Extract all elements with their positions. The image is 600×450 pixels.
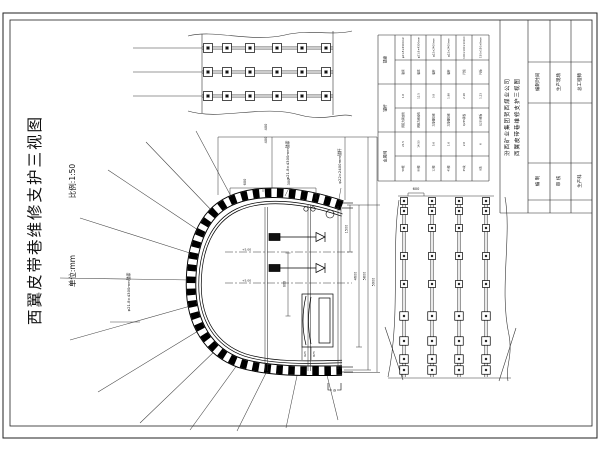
bolt-head — [403, 255, 405, 257]
elevation-view: 600 — [385, 187, 516, 381]
cross-section: +5.00 +5.00 625 875 — [60, 124, 380, 431]
bolt-head — [431, 255, 433, 257]
table-cell: 8块 — [479, 166, 483, 171]
field-label: 编制时间 — [534, 73, 541, 91]
bolt-head — [301, 71, 304, 74]
table-cell: 14.50 — [417, 140, 421, 148]
table-cell: 2.6 — [462, 142, 466, 146]
table-cell: 托板 — [462, 69, 466, 75]
bolt-head — [431, 283, 433, 285]
level-mark: +5.00 — [242, 248, 251, 252]
material-table: 锚索锚杆金属网φ21.8×4300mmφ21.8×4300mmφ22×2400m… — [378, 35, 489, 181]
table-side-header: 锚索 — [383, 56, 388, 64]
table-cell: 锚索 — [401, 69, 405, 75]
dim-label: 800 — [283, 281, 287, 287]
bolt-head — [431, 369, 433, 371]
bolt-head — [325, 71, 328, 74]
table-cell: 1.23 — [479, 93, 483, 99]
bolt-head — [458, 210, 460, 212]
table-cell: 150×150×8mm — [479, 37, 483, 58]
bolt-head — [485, 283, 487, 285]
bolt-head — [403, 283, 405, 285]
table-side-header: 锚杆 — [383, 104, 388, 112]
table-cell: 45根 — [447, 165, 451, 171]
table-cell: 6 — [479, 143, 483, 145]
section-structure-lines — [265, 205, 341, 371]
bolt-head — [403, 200, 405, 202]
bolt-head — [485, 369, 487, 371]
table-cell: 2.16 — [462, 93, 466, 99]
bolt-head — [458, 369, 460, 371]
table-cell: φ22×2400mm — [447, 38, 451, 57]
bolt-head — [458, 227, 460, 229]
bolt-head — [485, 255, 487, 257]
bolt-head — [226, 95, 229, 98]
bolt-head — [301, 95, 304, 98]
bolt-head — [458, 283, 460, 285]
bolt-head — [226, 47, 229, 50]
elevation-dim — [408, 193, 424, 196]
bolt-head — [207, 95, 210, 98]
level-mark: +5.00 — [242, 279, 251, 283]
table-cell: 1.6 — [401, 94, 405, 98]
bolt-head — [431, 210, 433, 212]
dim-label: 5900 — [372, 278, 376, 287]
field-label: 总工程师 — [576, 73, 583, 91]
table-cell: 锚索 — [417, 69, 421, 75]
bolt-head — [431, 358, 433, 360]
field-label: 审 核 — [555, 175, 562, 186]
bolt-head — [458, 255, 460, 257]
bolt-head — [249, 71, 252, 74]
bolt-head — [485, 340, 487, 342]
plan-bolt-grid — [204, 44, 331, 101]
anchor-cable-label: φ21.8×4300mm锚索 — [285, 140, 290, 179]
bolt-head — [249, 47, 252, 50]
dim-label: 400 — [264, 137, 268, 144]
table-cell: Q235钢板 — [462, 114, 466, 127]
table-cell: φ21.8×4300mm — [401, 36, 405, 58]
bolt-head — [207, 47, 210, 50]
bolt-head — [431, 227, 433, 229]
table-cell: 锚杆 — [432, 69, 436, 75]
bolt-head — [325, 47, 328, 50]
bolt-head — [403, 315, 405, 317]
bolt-head — [403, 369, 405, 371]
table-cell: 88根 — [417, 165, 421, 171]
bolt-head — [485, 315, 487, 317]
table-cell: 56根 — [401, 165, 405, 171]
anchor-bolt-symbols — [269, 232, 325, 273]
dim-label: 1500 — [345, 225, 349, 234]
anchor-cable-label: φ21.8×4300mm锚索 — [126, 272, 131, 311]
table-cell: 预应力钢绞线 — [417, 112, 421, 128]
section-mark-label: a — [333, 389, 336, 394]
scale-label: 比例:1:50 — [67, 164, 77, 199]
arch-support-band — [191, 193, 353, 372]
table-cell: φ21.8×4300mm — [417, 36, 421, 58]
bolt-head — [276, 95, 279, 98]
table-cell: 35块 — [462, 165, 466, 171]
drawing-sheet: 西翼皮带巷维修支护三视图 比例:1:50 单位:mm — [0, 0, 600, 450]
dim-label: 600 — [413, 187, 420, 191]
dim-label: 4600 — [354, 272, 358, 281]
bolt-head — [207, 71, 210, 74]
stand-dim: 875 — [312, 351, 316, 357]
dim-label: 600 — [243, 179, 247, 186]
table-cell: 锚杆 — [447, 69, 451, 75]
table-cell: 12.5 — [417, 93, 421, 99]
bolt-head — [325, 95, 328, 98]
bolt-head — [249, 95, 252, 98]
table-cell: Q235钢板 — [479, 114, 483, 127]
bolt-head — [403, 210, 405, 212]
dim-label: 5800 — [363, 272, 367, 281]
bolt-head — [276, 47, 279, 50]
sheet-titles: 西翼皮带巷维修支护三视图 比例:1:50 单位:mm — [26, 115, 77, 325]
bolt-head — [276, 71, 279, 74]
bolt-head — [485, 210, 487, 212]
bolt-head — [301, 47, 304, 50]
bolt-head — [403, 227, 405, 229]
bolt-head — [431, 315, 433, 317]
bolt-head — [431, 340, 433, 342]
table-cell: 100×100×10mm — [462, 36, 466, 59]
table-side-header: 金属网 — [383, 151, 388, 163]
title-block-drawing-title: 西翼皮带巷维修支护三视图 — [513, 78, 521, 156]
dim-right-chain — [344, 137, 380, 373]
table-cell: φ22×2400mm — [432, 38, 436, 57]
field-label: 编 制 — [534, 175, 541, 186]
table-cell: 左旋螺纹钢 — [447, 113, 451, 126]
anchor-bolt-label: φ22×2400mm锚杆 — [337, 148, 342, 183]
bolt-head — [458, 340, 460, 342]
table-cell: 21.5 — [401, 141, 405, 147]
page-title: 西翼皮带巷维修支护三视图 — [26, 115, 44, 325]
bolt-head — [403, 358, 405, 360]
bolt-head — [458, 358, 460, 360]
company-name: 汾西矿业集团贺西煤业公司 — [503, 78, 511, 156]
table-cell: 5.6 — [432, 142, 436, 146]
table-cell: 预应力钢绞线 — [401, 112, 405, 128]
field-label: 生产科 — [576, 174, 583, 188]
table-cell: 左旋螺纹钢 — [432, 113, 436, 126]
table-cell: 1.98 — [447, 93, 451, 99]
title-block: 汾西矿业集团贺西煤业公司 西翼皮带巷维修支护三视图 编制时间 生产现场 总工程师… — [500, 20, 592, 213]
bolt-head — [431, 200, 433, 202]
bolt-head — [458, 200, 460, 202]
engineering-drawing: 西翼皮带巷维修支护三视图 比例:1:50 单位:mm — [0, 0, 600, 450]
bolt-head — [226, 71, 229, 74]
dim-label: 400 — [264, 124, 268, 131]
stand-dim: 625 — [303, 351, 307, 357]
table-cell: 12根 — [432, 165, 436, 171]
table-cell: 托板 — [479, 69, 483, 75]
table-cell: 1.6 — [447, 142, 451, 146]
table-cell: 0.8 — [432, 94, 436, 98]
belt-stand — [302, 294, 333, 360]
bolt-head — [485, 200, 487, 202]
bolt-head — [485, 227, 487, 229]
bolt-head — [485, 358, 487, 360]
field-label: 生产现场 — [555, 73, 562, 91]
bolt-head — [403, 340, 405, 342]
bolt-head — [458, 315, 460, 317]
unit-label: 单位:mm — [67, 255, 77, 287]
material-table-cells: 锚索锚杆金属网φ21.8×4300mmφ21.8×4300mmφ22×2400m… — [383, 36, 483, 172]
elevation-bolt-grid — [400, 198, 491, 375]
plan-view — [133, 31, 352, 118]
